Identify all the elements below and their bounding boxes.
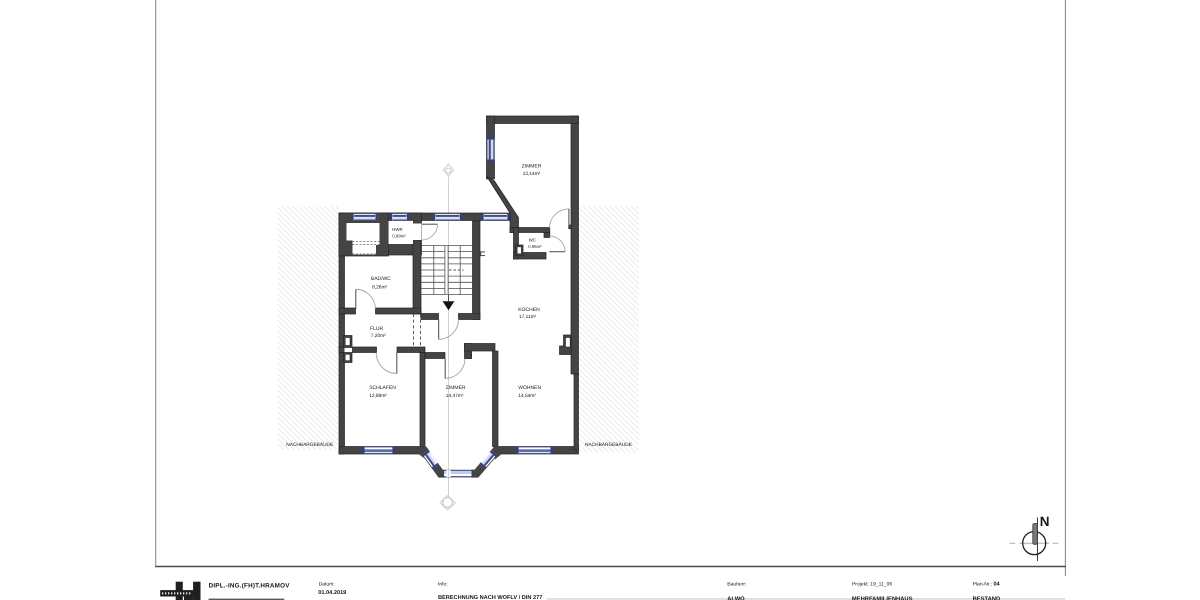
svg-text:MEHRFAMILIENHAUS: MEHRFAMILIENHAUS [852, 595, 913, 600]
svg-text:Datum:: Datum: [319, 582, 335, 588]
svg-text:NACHBARGEBÄUDE: NACHBARGEBÄUDE [286, 441, 333, 448]
svg-text:14,47m²: 14,47m² [446, 393, 464, 399]
svg-text:FLUR: FLUR [370, 326, 383, 332]
svg-text:14,54m²: 14,54m² [518, 393, 536, 399]
svg-text:7,20m²: 7,20m² [371, 333, 386, 339]
svg-text:8,26m²: 8,26m² [372, 284, 387, 290]
svg-text:0,99m²: 0,99m² [392, 233, 406, 238]
svg-text:WC: WC [529, 237, 536, 242]
svg-text:Plan-Nr.: 04: Plan-Nr.: 04 [973, 582, 1001, 588]
svg-text:KOCHEN: KOCHEN [518, 307, 540, 313]
svg-text:Info:: Info: [438, 582, 448, 588]
svg-text:ZIMMER: ZIMMER [446, 385, 466, 391]
svg-text:Bauherr:: Bauherr: [727, 582, 746, 588]
svg-text:Projekt: 19_11_06: Projekt: 19_11_06 [852, 582, 892, 588]
svg-text:SCHLAFEN: SCHLAFEN [369, 385, 396, 391]
svg-text:WOHNEN: WOHNEN [518, 385, 541, 391]
svg-text:ALWO: ALWO [727, 595, 745, 600]
svg-text:12,88m²: 12,88m² [369, 393, 387, 399]
svg-text:0,96m²: 0,96m² [528, 244, 542, 249]
svg-text:17,11m²: 17,11m² [519, 314, 537, 320]
svg-text:ZIMMER: ZIMMER [522, 163, 542, 169]
svg-text:NACHBARGEBÄUDE: NACHBARGEBÄUDE [585, 441, 632, 448]
svg-text:HWR: HWR [392, 227, 402, 232]
svg-text:13,14m²: 13,14m² [523, 171, 541, 177]
svg-text:N: N [1040, 514, 1050, 529]
svg-text:BERECHNUNG NACH WOFLV / DIN 27: BERECHNUNG NACH WOFLV / DIN 277 [438, 594, 542, 600]
svg-text:BAD/WC: BAD/WC [371, 276, 391, 282]
svg-text:DIPL.-ING.(FH)T.HRAMOV: DIPL.-ING.(FH)T.HRAMOV [209, 582, 291, 589]
svg-text:01.04.2019: 01.04.2019 [318, 590, 346, 596]
svg-text:BESTAND: BESTAND [973, 595, 1001, 600]
